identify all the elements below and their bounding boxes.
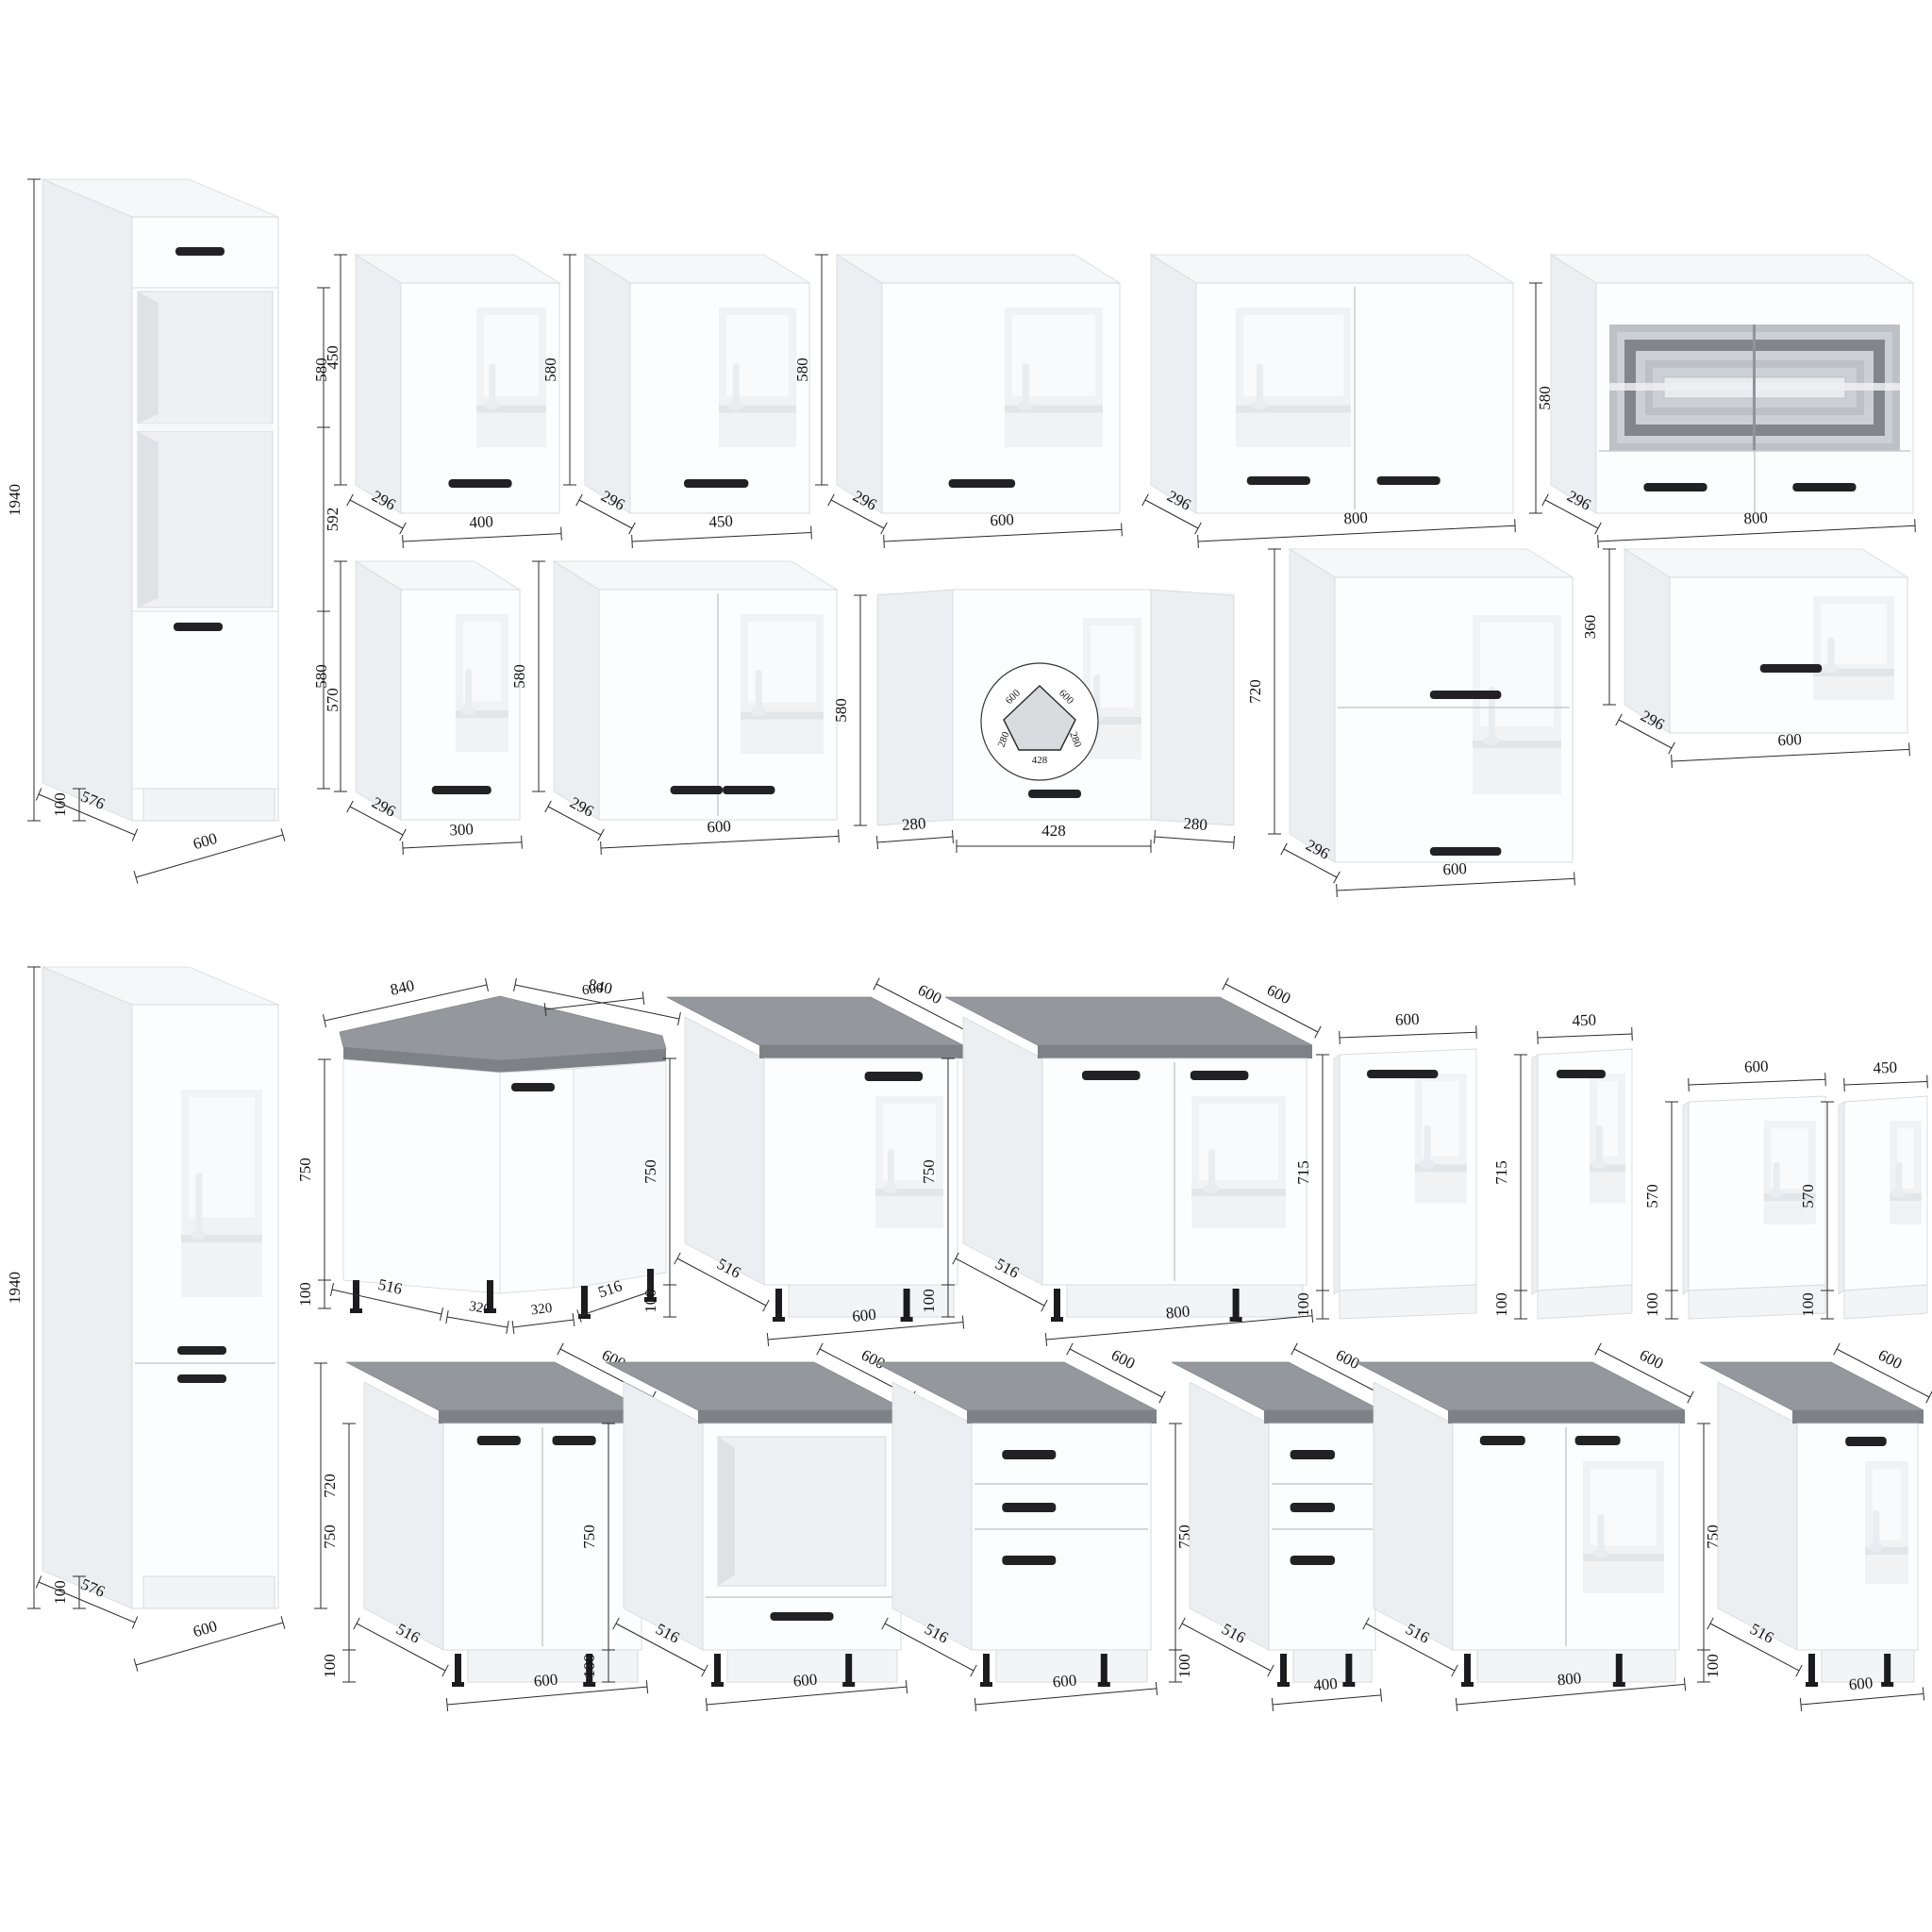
line xyxy=(1198,535,1199,548)
line xyxy=(877,837,953,842)
door-handle xyxy=(1082,1071,1141,1080)
dim-label: 360 xyxy=(1581,615,1599,640)
vase-silhouette xyxy=(1420,1159,1435,1169)
door-handle xyxy=(511,1083,555,1091)
adjustable-foot xyxy=(1345,1654,1352,1682)
line xyxy=(884,535,885,548)
door-handle xyxy=(477,1436,521,1445)
dim-label: 600 xyxy=(1442,859,1467,878)
dim-label: 100 xyxy=(920,1289,938,1313)
line xyxy=(1598,535,1599,548)
line xyxy=(1672,755,1673,768)
vase-silhouette xyxy=(484,401,499,410)
adjustable-foot xyxy=(1464,1654,1471,1682)
worktop-edge xyxy=(698,1410,907,1424)
adjustable-foot xyxy=(452,1682,464,1687)
adjustable-foot xyxy=(1806,1682,1818,1687)
line xyxy=(36,1576,41,1589)
line xyxy=(1476,1025,1477,1039)
dim-label: 600 xyxy=(1052,1671,1077,1690)
dim-label: 100 xyxy=(1294,1292,1312,1317)
line xyxy=(1672,749,1909,761)
dim-label: 580 xyxy=(793,358,811,382)
vase-silhouette xyxy=(1823,664,1838,674)
door-handle xyxy=(1792,483,1856,491)
dim-label: 750 xyxy=(580,1524,598,1549)
line xyxy=(975,1689,1157,1705)
dim-label: 750 xyxy=(641,1159,659,1184)
line xyxy=(1156,1682,1157,1695)
catalog-canvas: 1940450592570100576600580296400580296450… xyxy=(0,0,1932,1932)
line xyxy=(1334,872,1341,883)
vase-silhouette xyxy=(1591,1159,1607,1169)
cabinet-side xyxy=(624,1382,703,1650)
line xyxy=(1538,1031,1539,1044)
dim-label: 400 xyxy=(469,512,493,531)
door-handle xyxy=(684,479,748,488)
dim-label: 428 xyxy=(1041,822,1066,840)
cabinet-top xyxy=(1624,549,1907,577)
cabinet-top xyxy=(554,561,837,590)
dim-label: 450 xyxy=(708,512,733,531)
adjustable-foot xyxy=(581,1286,588,1314)
cabinet-top xyxy=(837,255,1120,283)
dim-label: 570 xyxy=(324,688,341,712)
line xyxy=(403,842,522,848)
dim-label: 100 xyxy=(51,792,69,817)
line xyxy=(1273,1695,1381,1705)
dim-label: 600 xyxy=(915,981,944,1008)
dim-label: 800 xyxy=(1165,1302,1191,1322)
vase-silhouette xyxy=(191,1230,206,1240)
cabinet-front xyxy=(972,1424,1151,1650)
cabinet-side xyxy=(1190,1382,1269,1650)
dim-label: 100 xyxy=(1704,1654,1722,1678)
worktop-edge xyxy=(1264,1410,1381,1424)
line xyxy=(1595,523,1602,534)
vase-silhouette xyxy=(728,401,743,410)
dim-label: 600 xyxy=(1264,981,1293,1008)
door-handle xyxy=(1291,1450,1335,1459)
line xyxy=(1155,830,1156,843)
dim-label: 840 xyxy=(389,976,416,999)
vase-silhouette xyxy=(489,363,495,405)
dim-label: 720 xyxy=(321,1474,339,1498)
vase-silhouette xyxy=(1769,1189,1784,1198)
dim-label: 100 xyxy=(1643,1292,1661,1317)
line xyxy=(1825,1073,1826,1086)
dim-label: 280 xyxy=(901,814,926,834)
line xyxy=(403,535,404,548)
dim-label: 600 xyxy=(851,1306,876,1325)
door-handle xyxy=(1028,790,1081,798)
door-handle xyxy=(1002,1450,1056,1459)
cabinet-side xyxy=(1624,549,1670,733)
line xyxy=(1598,525,1915,541)
panel-plinth xyxy=(1340,1285,1476,1319)
line xyxy=(598,829,605,841)
dim-label: 600 xyxy=(858,1346,888,1374)
door-handle xyxy=(175,247,225,256)
cabinet-side xyxy=(892,1382,972,1650)
dim-label: 320 xyxy=(530,1301,553,1319)
line xyxy=(811,526,812,540)
cabinet-side xyxy=(356,561,401,820)
line xyxy=(522,836,523,849)
adjustable-foot xyxy=(1613,1682,1625,1687)
line xyxy=(884,529,1122,541)
line xyxy=(1800,1698,1801,1711)
adjustable-foot xyxy=(1277,1682,1290,1687)
cabinet-side xyxy=(554,561,599,820)
line xyxy=(763,1300,770,1311)
plinth xyxy=(143,789,275,821)
cabinet-side xyxy=(1151,255,1196,513)
adjustable-foot xyxy=(350,1308,362,1313)
door-handle xyxy=(1291,1503,1335,1512)
adjustable-foot xyxy=(901,1317,913,1322)
line xyxy=(1155,837,1234,842)
cabinet-side xyxy=(1374,1382,1453,1650)
line xyxy=(1195,523,1202,534)
vase-silhouette xyxy=(1890,1189,1906,1198)
adjustable-foot xyxy=(1342,1682,1355,1687)
door-handle xyxy=(553,1436,596,1445)
dim-label: 600 xyxy=(1848,1674,1874,1693)
wall-cabinet-corner: 600600280280428580280428280 xyxy=(832,590,1234,853)
dim-label: 450 xyxy=(1873,1058,1897,1077)
cabinet-side xyxy=(1551,255,1596,513)
door-handle xyxy=(1002,1556,1056,1565)
line xyxy=(1142,494,1149,506)
line xyxy=(1542,494,1549,506)
worktop-edge xyxy=(759,1045,963,1058)
adjustable-foot xyxy=(842,1682,855,1687)
line xyxy=(1337,878,1574,891)
door-handle xyxy=(1760,664,1823,673)
dim-label: 600 xyxy=(533,1671,558,1690)
line xyxy=(1268,1665,1274,1676)
line xyxy=(36,789,41,801)
vase-silhouette xyxy=(888,1149,894,1189)
dim-label: 100 xyxy=(296,1282,314,1307)
corner-door xyxy=(500,1069,574,1293)
cabinet-side xyxy=(356,255,401,513)
line xyxy=(1688,1391,1693,1403)
base-cabinet-3-drawer-600: 600750100516600 xyxy=(874,1343,1193,1711)
dim-label: 715 xyxy=(1492,1160,1510,1185)
oven-niche xyxy=(718,1437,886,1586)
line xyxy=(828,494,835,506)
vase-silhouette xyxy=(1868,1542,1883,1552)
cabinet-side xyxy=(364,1382,443,1650)
cabinet-top xyxy=(1151,255,1513,283)
dim-label: 570 xyxy=(1643,1184,1661,1208)
wall-cabinet-2-door-800: 580296800 xyxy=(1142,255,1554,548)
vase-silhouette xyxy=(1592,1549,1607,1558)
dim-label: 428 xyxy=(1032,755,1048,766)
line xyxy=(1198,525,1515,541)
panel-plinth xyxy=(1538,1285,1632,1319)
base-cabinet-corner-840: 840840600750100516320320516 xyxy=(296,975,680,1334)
line xyxy=(881,523,888,534)
line xyxy=(974,1698,975,1711)
line xyxy=(1632,1027,1633,1041)
dim-label: 100 xyxy=(321,1654,339,1678)
wall-cabinet-1-door-400: 580296400 xyxy=(312,255,561,548)
line xyxy=(1223,978,1228,990)
line xyxy=(1616,714,1623,725)
line xyxy=(400,523,407,534)
vase-silhouette xyxy=(1018,401,1033,410)
wall-cabinet-2-door-600: 580296600 xyxy=(510,561,839,855)
vase-silhouette xyxy=(1252,401,1267,410)
door-handle xyxy=(770,1612,833,1621)
tall-cabinet-oven-housing-600: 1940450592570100576600 xyxy=(6,179,341,884)
line xyxy=(561,527,562,541)
dim-label: 400 xyxy=(1313,1674,1339,1694)
dim-label: 450 xyxy=(1572,1011,1596,1030)
dim-label: 280 xyxy=(1183,814,1208,834)
line xyxy=(874,978,879,990)
vase-silhouette xyxy=(1257,363,1263,405)
vase-silhouette xyxy=(195,1173,202,1235)
line xyxy=(601,841,602,855)
door-handle xyxy=(1191,1071,1249,1080)
door-handle xyxy=(1643,483,1707,491)
line xyxy=(447,1687,647,1705)
door-handle xyxy=(671,786,723,794)
cabinet-side xyxy=(42,179,132,821)
vase-silhouette xyxy=(756,670,762,711)
line xyxy=(354,1618,360,1629)
dim-label: 750 xyxy=(296,1158,314,1182)
dim-label: 592 xyxy=(324,508,341,532)
line xyxy=(400,829,407,841)
line xyxy=(952,830,953,843)
dim-label: 100 xyxy=(51,1580,69,1605)
line xyxy=(601,836,839,848)
line xyxy=(403,534,561,541)
line xyxy=(442,1665,449,1676)
vase-silhouette xyxy=(1023,363,1029,405)
adjustable-foot xyxy=(455,1654,461,1682)
door-handle xyxy=(949,479,1016,488)
vase-silhouette xyxy=(751,708,766,717)
adjustable-foot xyxy=(583,1682,595,1687)
line xyxy=(817,1343,823,1355)
door-handle xyxy=(1367,1070,1438,1078)
tall-cabinet-fridge-housing-600: 1940720100576600 xyxy=(6,967,339,1672)
line xyxy=(906,1680,907,1693)
dim-label: 580 xyxy=(510,664,528,689)
dim-label: 750 xyxy=(920,1159,938,1184)
wall-cabinet-flap-600x360: 360296600 xyxy=(1581,549,1909,768)
line xyxy=(1045,1333,1046,1346)
vase-silhouette xyxy=(1204,1184,1219,1193)
line xyxy=(558,1343,563,1355)
line xyxy=(1707,1618,1714,1629)
line xyxy=(576,494,583,506)
dim-label: 720 xyxy=(1246,679,1264,704)
worktop-edge xyxy=(439,1410,647,1424)
niche-shade xyxy=(718,1437,735,1586)
line xyxy=(767,1333,768,1346)
niche-shade xyxy=(138,291,158,424)
line xyxy=(1272,1698,1273,1711)
line xyxy=(1801,1693,1924,1705)
line xyxy=(1041,1300,1048,1311)
door-handle xyxy=(723,786,774,794)
corner-left-front xyxy=(343,1059,500,1293)
vase-silhouette xyxy=(1484,736,1499,745)
door-handle xyxy=(1575,1436,1621,1445)
vase-silhouette xyxy=(1597,1514,1604,1554)
vase-silhouette xyxy=(465,669,472,710)
line xyxy=(1923,1688,1924,1701)
dim-label: 580 xyxy=(312,664,330,689)
cabinet-top xyxy=(1551,255,1913,283)
line xyxy=(1456,1698,1457,1711)
adjustable-foot xyxy=(1054,1289,1060,1317)
line xyxy=(1515,519,1516,532)
line xyxy=(1179,1618,1186,1629)
line xyxy=(132,1617,137,1629)
line xyxy=(1340,1032,1476,1038)
line xyxy=(839,829,840,842)
door-handle xyxy=(448,479,511,488)
line xyxy=(1159,1391,1165,1403)
cabinet-side xyxy=(1290,549,1335,862)
dim-label: 800 xyxy=(1743,508,1768,527)
wall-cabinet-2-flap-600x720: 720296600 xyxy=(1246,549,1574,897)
line xyxy=(1234,836,1235,849)
adjustable-foot xyxy=(1233,1289,1240,1317)
line xyxy=(446,1698,447,1711)
dim-label: 516 xyxy=(376,1275,404,1298)
dim-label: 570 xyxy=(1799,1184,1817,1208)
cabinet-side xyxy=(685,1017,764,1285)
kitchen-cabinet-catalog: 1940450592570100576600580296400580296450… xyxy=(0,0,1932,1932)
line xyxy=(1281,843,1288,855)
dim-label: 800 xyxy=(1343,508,1368,527)
adjustable-foot xyxy=(1101,1654,1108,1682)
adjustable-foot xyxy=(980,1682,992,1687)
adjustable-foot xyxy=(773,1317,785,1322)
door-handle xyxy=(1430,847,1502,856)
line xyxy=(1340,1031,1341,1044)
adjustable-foot xyxy=(1098,1682,1110,1687)
door-handle xyxy=(1377,476,1441,485)
dim-label: 100 xyxy=(641,1289,659,1313)
dim-label: 600 xyxy=(990,510,1014,529)
corner-right-wing xyxy=(1151,590,1234,825)
worktop-edge xyxy=(967,1410,1157,1424)
door-front xyxy=(132,611,278,789)
adjustable-foot xyxy=(845,1654,852,1682)
dim-label: 750 xyxy=(321,1524,339,1549)
dishwasher-front-panel-600: 600715100 xyxy=(1294,1010,1476,1319)
dim-label: 100 xyxy=(1175,1654,1193,1678)
panel-edge xyxy=(1532,1055,1538,1294)
door-handle xyxy=(174,623,223,631)
line xyxy=(1452,1665,1458,1676)
cabinet-side xyxy=(585,255,630,513)
door-handle xyxy=(432,786,491,794)
line xyxy=(347,801,354,812)
line xyxy=(1844,1081,1927,1085)
adjustable-foot xyxy=(904,1289,910,1317)
vase-silhouette xyxy=(733,363,740,405)
line xyxy=(1337,884,1338,897)
line xyxy=(545,801,552,812)
worktop-edge xyxy=(1038,1045,1312,1058)
door-handle xyxy=(1845,1437,1887,1446)
base-cabinet-1-door-600: 600516600 xyxy=(1700,1343,1932,1711)
adjustable-foot xyxy=(711,1682,724,1687)
line xyxy=(1909,742,1910,756)
wall-cabinet-1-door-300: 580296300 xyxy=(312,561,522,855)
line xyxy=(876,836,877,849)
dim-label: 580 xyxy=(312,358,330,382)
line xyxy=(971,1665,977,1676)
dim-label: 600 xyxy=(1637,1346,1666,1374)
wall-cabinet-1-door-600: 580296600 xyxy=(793,255,1122,548)
adjustable-foot xyxy=(1051,1317,1063,1322)
line xyxy=(1067,1343,1073,1355)
door-handle xyxy=(1557,1070,1606,1078)
dim-label: 320 xyxy=(468,1299,491,1318)
line xyxy=(702,1665,708,1676)
panel-edge xyxy=(1334,1055,1340,1294)
adjustable-foot xyxy=(714,1654,721,1682)
adjustable-foot xyxy=(1881,1682,1893,1687)
line xyxy=(1689,1079,1825,1085)
line xyxy=(962,1316,963,1329)
cabinet-top xyxy=(1290,549,1573,577)
wall-cabinet-glass-2-door-800: 296800 xyxy=(1542,255,1916,548)
dim-label: 300 xyxy=(449,820,474,839)
adjustable-foot xyxy=(1461,1682,1474,1687)
door-handle xyxy=(1430,691,1502,699)
dim-label: 600 xyxy=(1744,1058,1769,1076)
adjustable-foot xyxy=(775,1289,782,1317)
line xyxy=(629,523,636,534)
dim-label: 800 xyxy=(1557,1669,1582,1689)
line xyxy=(1796,1665,1803,1676)
line xyxy=(403,841,404,855)
line xyxy=(1595,1343,1601,1355)
base-cabinet-2-door-800: 600750100516800 xyxy=(920,978,1321,1346)
adjustable-foot xyxy=(1884,1654,1890,1682)
dim-label: 715 xyxy=(1294,1160,1312,1185)
vase-silhouette xyxy=(883,1184,898,1193)
line xyxy=(768,1323,963,1340)
shelf-edge xyxy=(138,424,273,431)
panel-edge xyxy=(1683,1102,1689,1294)
line xyxy=(1915,519,1916,532)
dim-label: 580 xyxy=(541,358,559,382)
dim-label: 580 xyxy=(832,698,850,723)
line xyxy=(347,494,354,506)
door-handle xyxy=(1291,1556,1335,1565)
line xyxy=(1689,1078,1690,1091)
cabinet-side xyxy=(42,967,132,1608)
cabinet-side xyxy=(837,255,882,513)
panel-plinth xyxy=(1844,1285,1927,1319)
door-handle xyxy=(177,1374,226,1383)
glass-door-split xyxy=(1753,325,1756,451)
